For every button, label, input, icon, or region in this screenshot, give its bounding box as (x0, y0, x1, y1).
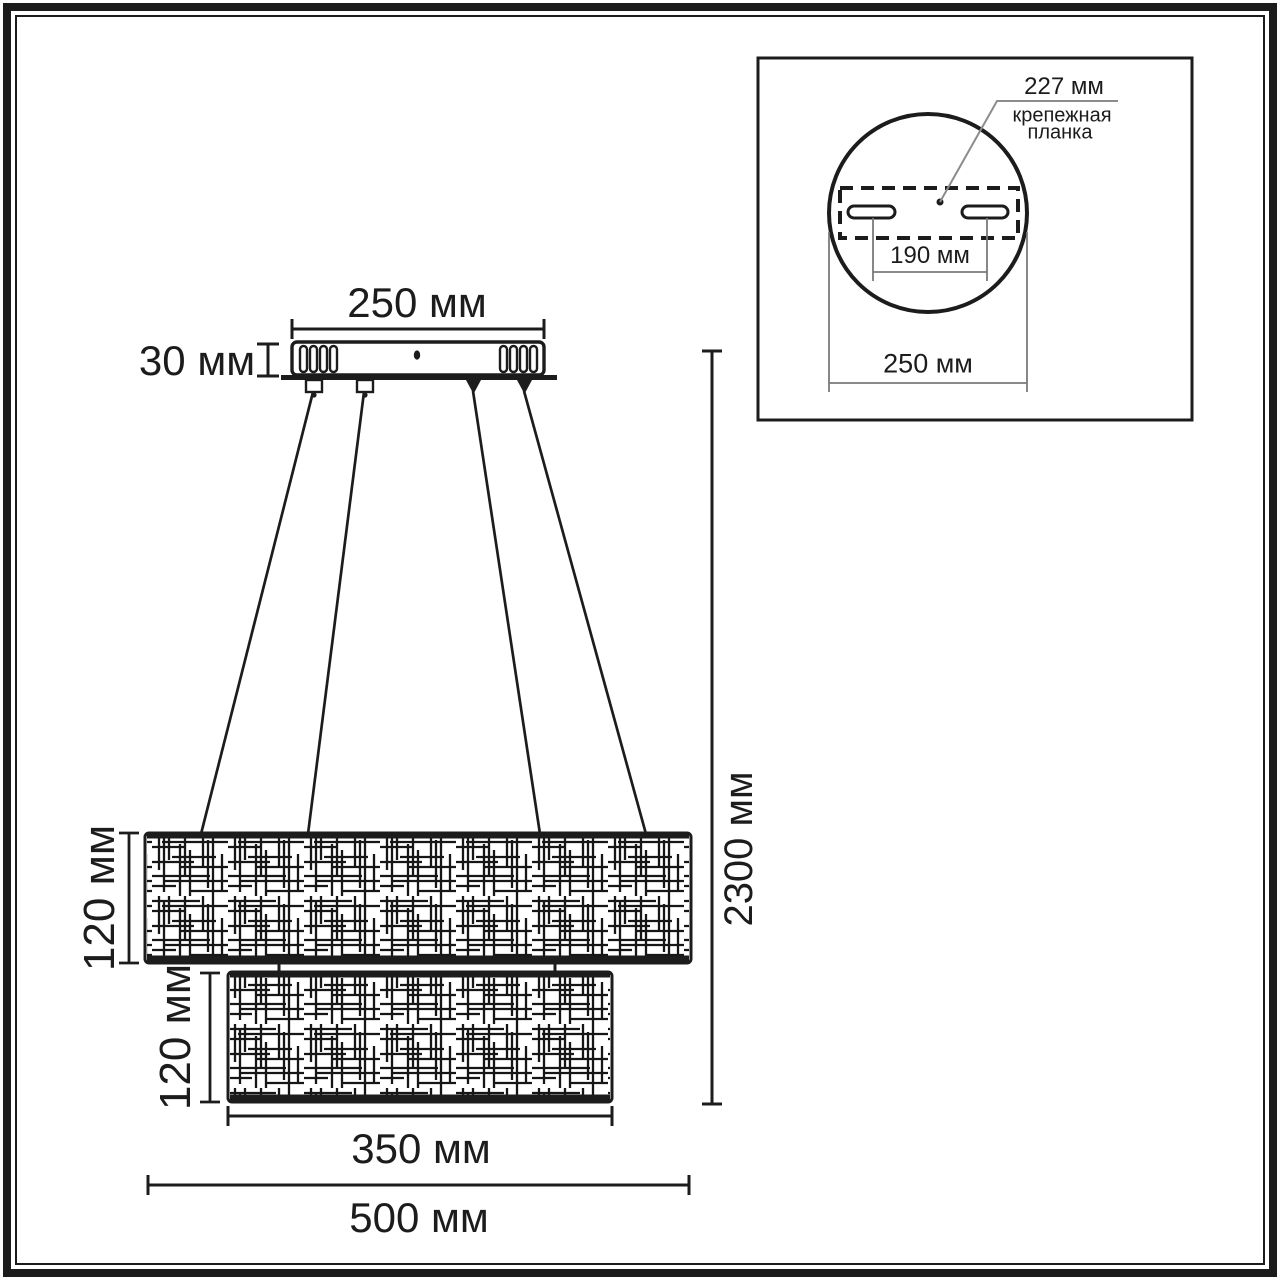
dim-lower-shade-width-label: 350 мм (351, 1128, 491, 1170)
dim-canopy-height-label: 30 мм (139, 340, 255, 382)
suspension-cables (201, 391, 646, 834)
dim-upper-shade-width-label: 500 мм (349, 1197, 489, 1239)
inset-plate-caption-line2: планка (1028, 125, 1093, 142)
inset-plate-length-label: 227 мм (1024, 75, 1104, 99)
dim-lower-shade-height-label: 120 мм (154, 964, 198, 1110)
cable-grip-left-2 (357, 380, 373, 398)
dim-suspension-height-label: 2300 мм (719, 771, 759, 926)
dim-upper-shade-width (148, 1175, 689, 1195)
dim-lower-shade-height (200, 973, 220, 1102)
lower-shade (228, 972, 612, 1102)
inset-diameter-label: 250 мм (883, 351, 973, 378)
dim-upper-shade-height-label: 120 мм (78, 825, 122, 971)
ceiling-canopy (281, 342, 557, 398)
inset-slot-spacing-label: 190 мм (890, 244, 970, 268)
cable-grip-left-1 (306, 380, 322, 398)
upper-shade (145, 833, 691, 963)
mounting-slot-right (962, 206, 1008, 218)
mounting-inset (758, 58, 1192, 420)
inset-border (758, 58, 1192, 420)
mounting-slot-left (848, 206, 895, 218)
dim-canopy-width-label: 250 мм (347, 282, 487, 324)
dim-suspension-height (702, 351, 722, 1104)
dim-canopy-height (257, 344, 279, 376)
dim-lower-shade-width (228, 1106, 612, 1126)
canopy-center-hole (414, 350, 420, 359)
